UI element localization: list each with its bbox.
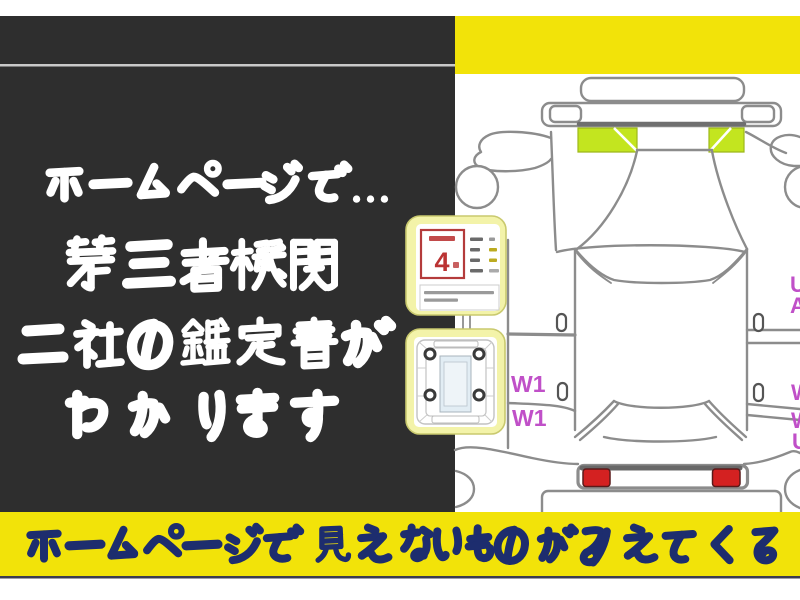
- svg-text:W1: W1: [512, 405, 547, 431]
- svg-text:W1: W1: [511, 371, 546, 397]
- svg-text:4: 4: [434, 247, 449, 277]
- svg-text:W: W: [791, 380, 800, 405]
- svg-text:A: A: [790, 293, 800, 318]
- svg-text:U: U: [792, 429, 800, 454]
